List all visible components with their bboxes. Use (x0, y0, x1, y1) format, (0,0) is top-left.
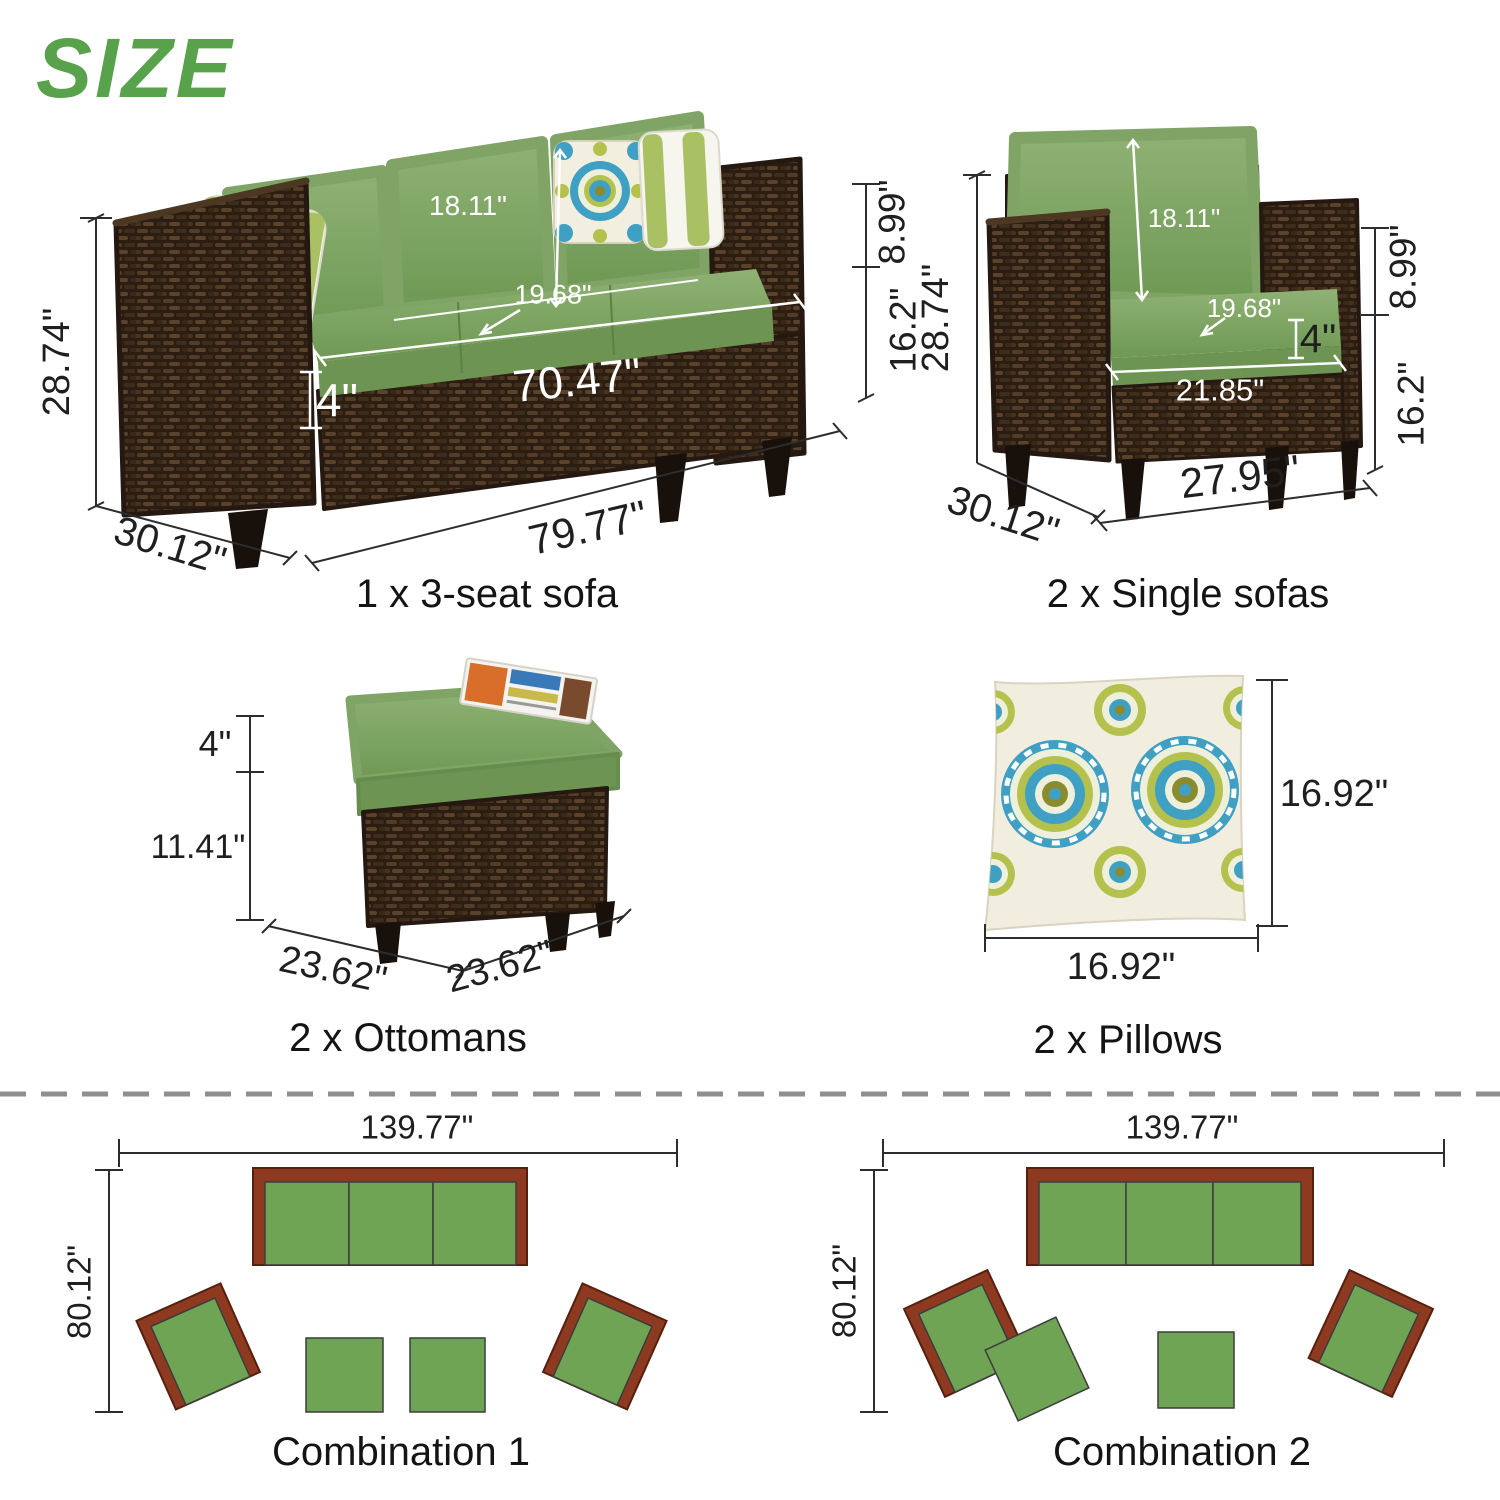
combo2-label: Combination 2 (1053, 1432, 1311, 1472)
sofa-dim-back-cushion: 18.11" (429, 192, 507, 220)
pillow-illustration (971, 676, 1267, 930)
single-sofa-label: 2 x Single sofas (1047, 574, 1329, 614)
ottoman-illustration (350, 658, 618, 964)
single-dim-cushion-thickness: 4" (1300, 319, 1336, 359)
page-title: SIZE (36, 20, 235, 117)
combination-1-diagram (136, 1168, 666, 1412)
pillow-medallion-big-left (1001, 740, 1109, 848)
combo1-label: Combination 1 (272, 1432, 530, 1472)
size-diagram-page: SIZE 28.74" 30.12" 18.11" 19.68" 4" 70.4… (0, 0, 1500, 1500)
single-dim-back-above-arm: 8.99" (1385, 224, 1422, 309)
sofa-label: 1 x 3-seat sofa (356, 574, 618, 614)
combo1-dim-depth: 80.12" (63, 1245, 96, 1339)
sofa-illustration (116, 117, 804, 569)
sofa-dim-cushion-thickness: 4" (316, 377, 358, 423)
combo2-dim-depth: 80.12" (828, 1244, 861, 1338)
single-dim-overall-height: 28.74" (917, 264, 955, 373)
single-dim-arm-height: 16.2" (1393, 361, 1430, 446)
single-dim-seat-width: 21.85" (1176, 375, 1265, 406)
single-dim-seat-depth: 19.68" (1207, 295, 1281, 321)
medallion-pillow-sofa (554, 141, 646, 243)
pillow-dim-width: 16.92" (1067, 948, 1176, 986)
combo2-dim-width: 139.77" (1126, 1111, 1239, 1144)
ottoman-label: 2 x Ottomans (289, 1018, 527, 1058)
striped-pillow-right (638, 129, 724, 251)
pillow-medallion-big-right (1131, 736, 1239, 844)
combo1-dim-width: 139.77" (361, 1111, 474, 1144)
ottoman-dim-base-height: 11.41" (151, 830, 246, 864)
single-dim-back-cushion: 18.11" (1148, 205, 1220, 231)
pillow-dim-height: 16.92" (1280, 775, 1389, 813)
combination-2-diagram (904, 1168, 1433, 1421)
sofa-dim-seat-depth: 19.68" (514, 282, 591, 309)
sofa-dim-seat-width: 70.47" (511, 351, 644, 409)
sofa-dim-overall-height: 28.74" (38, 308, 76, 417)
ottoman-dim-cushion-thickness: 4" (199, 726, 232, 762)
sofa-dim-back-above-arm: 8.99" (874, 179, 911, 264)
pillow-label: 2 x Pillows (1034, 1020, 1223, 1060)
